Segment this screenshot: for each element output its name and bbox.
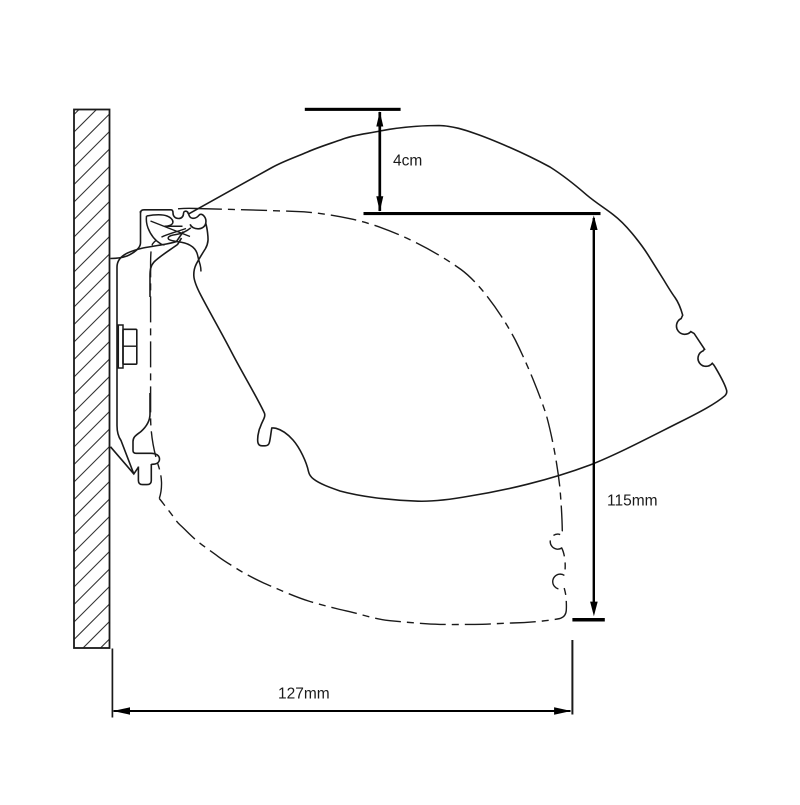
svg-text:127mm: 127mm bbox=[278, 685, 330, 702]
svg-text:115mm: 115mm bbox=[607, 493, 658, 510]
svg-text:4cm: 4cm bbox=[393, 153, 422, 170]
